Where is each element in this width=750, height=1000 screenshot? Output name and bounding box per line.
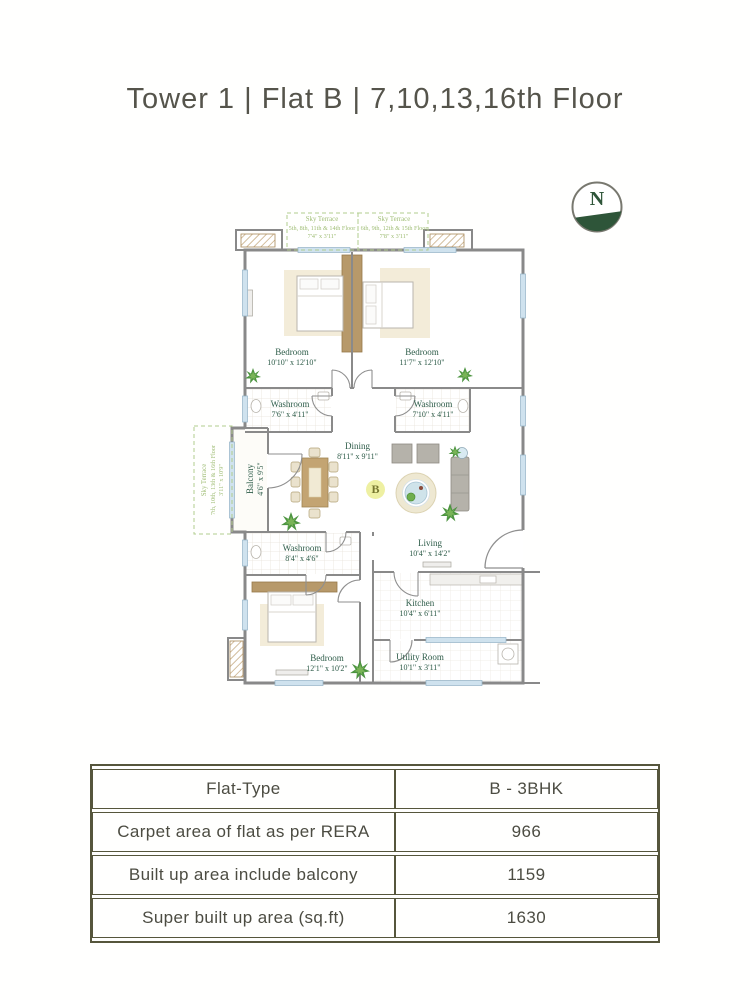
sky-terrace-label-top-right: Sky Terrace 6th, 9th, 12th & 15th Floor … (351, 216, 437, 241)
room-label-dining: Dining 8'11" x 9'11" (315, 441, 400, 462)
dining-chair (329, 477, 338, 487)
room-label-washroom-3: Washroom 8'4" x 4'6" (258, 543, 346, 564)
console-table (423, 562, 451, 567)
dining-chair (291, 492, 300, 502)
spec-label: Built up area include balcony (92, 855, 395, 895)
bed2-pillow (366, 306, 376, 324)
room-label-kitchen: Kitchen 10'4" x 6'11" (376, 598, 464, 619)
room-label-living: Living 10'4" x 14'2" (387, 538, 473, 559)
table-row: Flat-Type B - 3BHK (92, 769, 658, 809)
bed3-pillow (271, 595, 291, 605)
spec-label: Flat-Type (92, 769, 395, 809)
spec-value: 966 (395, 812, 658, 852)
pond-water (405, 482, 427, 504)
page-title: Tower 1 | Flat B | 7,10,13,16th Floor (0, 83, 750, 116)
wardrobe-hatched (230, 641, 243, 677)
washing-machine (498, 644, 518, 664)
kitchen-sink (480, 576, 496, 583)
turtle (407, 493, 415, 501)
room-label-bedroom-3: Bedroom 12'1" x 10'2" (283, 653, 371, 674)
north-compass: N (571, 181, 623, 233)
brochure-page: Tower 1 | Flat B | 7,10,13,16th Floor (0, 0, 750, 1000)
spec-label: Super built up area (sq.ft) (92, 898, 395, 938)
service-duct (523, 572, 540, 683)
dining-chair (309, 509, 320, 518)
pond-stone (419, 486, 423, 490)
room-label-balcony: Balcony 4'6" x 9'5" (245, 439, 269, 519)
room-label-washroom-1: Washroom 7'6" x 4'11" (246, 399, 334, 420)
armchair (417, 444, 439, 463)
bed3-pillow (293, 595, 313, 605)
flat-spec-table: Flat-Type B - 3BHK Carpet area of flat a… (90, 764, 660, 943)
spec-value: 1159 (395, 855, 658, 895)
dining-chair (329, 462, 338, 472)
bed1-pillow (321, 279, 339, 289)
room-label-bedroom-1: Bedroom 10'10" x 12'10" (247, 347, 337, 368)
bed1-pillow (300, 279, 318, 289)
table-row: Built up area include balcony 1159 (92, 855, 658, 895)
dining-chair (329, 492, 338, 502)
dining-chair (291, 462, 300, 472)
kitchen-counter (430, 574, 522, 585)
unit-badge: B (366, 480, 385, 499)
sky-terrace-label-left: Sky Terrace 7th, 10th, 13th & 16th Floor… (201, 428, 227, 532)
wardrobe-hatched (241, 234, 275, 247)
spec-value: 1630 (395, 898, 658, 938)
compass-north-letter: N (571, 188, 623, 211)
spec-value: B - 3BHK (395, 769, 658, 809)
bed2-pillow (366, 285, 376, 303)
room-label-washroom-2: Washroom 7'10" x 4'11" (389, 399, 477, 420)
sofa (451, 457, 469, 511)
table-row: Carpet area of flat as per RERA 966 (92, 812, 658, 852)
room-label-bedroom-2: Bedroom 11'7" x 12'10" (377, 347, 467, 368)
table-row: Super built up area (sq.ft) 1630 (92, 898, 658, 938)
room-label-utility: Utility Room 10'1" x 3'11" (376, 652, 464, 673)
spec-label: Carpet area of flat as per RERA (92, 812, 395, 852)
dining-table-runner (309, 468, 321, 497)
